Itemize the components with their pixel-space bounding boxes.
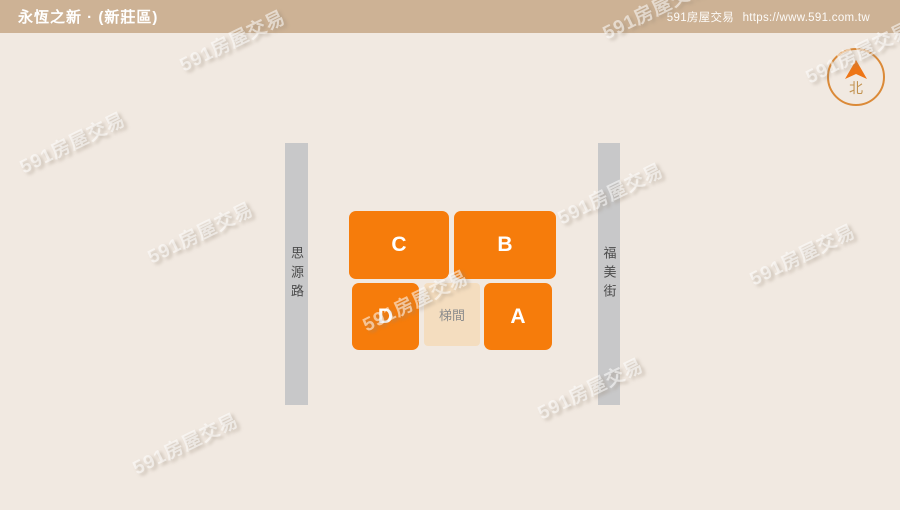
watermark-text: 591房屋交易 — [745, 217, 860, 292]
watermark-text: 591房屋交易 — [143, 195, 258, 270]
road-left-name: 思源路 — [290, 246, 303, 303]
watermark-text: 591房屋交易 — [128, 406, 243, 481]
watermark-text: 591房屋交易 — [15, 105, 130, 180]
unit-label: D — [378, 305, 393, 329]
compass-north-indicator: 北 — [827, 48, 885, 106]
unit-block-b[interactable]: B — [454, 211, 556, 279]
site-name: 591房屋交易 — [667, 12, 734, 24]
unit-block-d[interactable]: D — [352, 283, 419, 350]
site-url: https://www.591.com.tw — [743, 12, 870, 24]
watermark-layer: 591房屋交易591房屋交易591房屋交易591房屋交易591房屋交易591房屋… — [0, 0, 900, 510]
unit-label: C — [391, 233, 406, 257]
watermark-text: 591房屋交易 — [533, 351, 648, 426]
road-right-name: 福美街 — [603, 246, 616, 303]
unit-block-a[interactable]: A — [484, 283, 552, 350]
header-bar: 永恆之新 · (新莊區) 591房屋交易 https://www.591.com… — [0, 0, 900, 33]
compass-north-label: 北 — [849, 81, 863, 95]
north-arrow-icon — [845, 60, 867, 79]
road-left: 思源路 — [285, 143, 308, 405]
stairwell-label: 梯間 — [439, 305, 465, 324]
road-right: 福美街 — [598, 143, 620, 405]
unit-block-c[interactable]: C — [349, 211, 449, 279]
unit-label: B — [497, 233, 512, 257]
unit-label: A — [510, 305, 525, 329]
page-title: 永恆之新 · (新莊區) — [18, 6, 158, 27]
stairwell-block: 梯間 — [424, 283, 480, 346]
site-credit: 591房屋交易 https://www.591.com.tw — [667, 9, 870, 25]
